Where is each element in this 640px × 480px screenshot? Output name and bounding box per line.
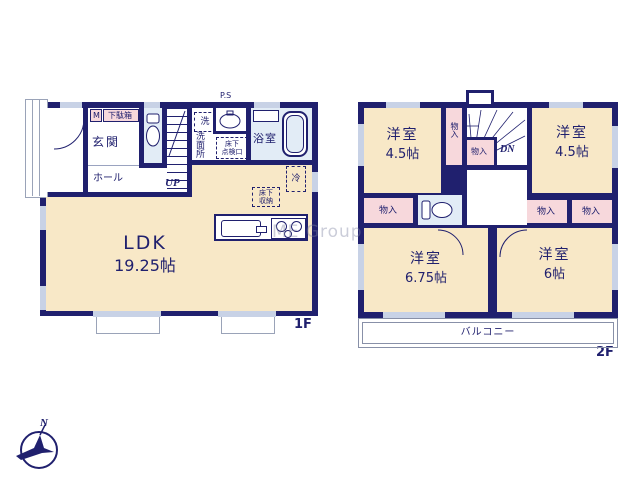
bedroom-ne-name: 洋室 [532, 126, 612, 140]
closet-se2-label: 物入 [582, 208, 600, 217]
window [386, 102, 420, 108]
underfloor-hatch: 床下 点検口 [216, 137, 248, 159]
pipe-space-label: P.S [220, 92, 231, 100]
window [549, 102, 583, 108]
hall-label: ホール [93, 174, 123, 184]
window [512, 312, 574, 318]
underfloor-storage-line1: 床下 [259, 189, 273, 197]
ldk-size-label: 19.25帖 [90, 258, 200, 274]
window [312, 172, 318, 192]
bathroom-label: 浴室 [253, 133, 277, 144]
watermark: ME Group [272, 224, 363, 241]
terrace [221, 317, 275, 334]
closet-tall-label: 物入 [450, 122, 458, 138]
kitchen-faucet-icon [256, 226, 267, 233]
window [40, 286, 46, 310]
washer-label: 洗 [200, 117, 209, 127]
window [254, 102, 280, 108]
ldk-name-label: LDK [90, 234, 200, 253]
closet-sw-label: 物入 [379, 207, 397, 216]
window [40, 206, 46, 230]
bedroom-ne-size: 4.5帖 [532, 146, 612, 159]
bedroom-se-size: 6帖 [497, 268, 612, 281]
toilet-icon-2f [420, 197, 460, 223]
underfloor-hatch-line2: 点検口 [222, 148, 243, 156]
terrace [96, 317, 160, 334]
stairs-up-label: UP [165, 178, 180, 189]
approach-steps [25, 99, 48, 198]
bedroom-nw-size: 4.5帖 [364, 148, 441, 161]
stairs-down-label: DN [500, 145, 514, 155]
bath-counter [253, 110, 279, 122]
washer-space: 洗 [194, 112, 216, 132]
meter-box-label: M [93, 112, 100, 120]
bedroom-nw-name: 洋室 [364, 128, 441, 142]
underfloor-storage: 床下 収納 [252, 187, 280, 207]
stair-window-bay [466, 90, 494, 104]
washbasin-icon [216, 110, 244, 130]
closet-se1-label: 物入 [537, 208, 555, 217]
toilet-icon-1f [144, 112, 162, 156]
floor1-label: 1F [294, 318, 312, 331]
kitchen-sink-icon [221, 220, 261, 237]
underfloor-hatch-line1: 床下 [225, 140, 239, 148]
window [358, 244, 364, 290]
door-arc-icon [441, 167, 468, 194]
bedroom-se-name: 洋室 [497, 248, 612, 262]
bedroom-sw [364, 228, 488, 312]
approach-step-line [39, 99, 40, 196]
bedroom-sw-name: 洋室 [364, 252, 488, 266]
compass-icon [14, 424, 64, 474]
fridge-space: 冷 [286, 166, 306, 192]
entrance-label: 玄関 [92, 136, 120, 148]
washroom-label: 洗面所 [194, 131, 203, 158]
bathtub-inner-line [286, 115, 304, 153]
window [358, 124, 364, 166]
window [383, 312, 445, 318]
compass-north-label: N [40, 418, 48, 429]
shoe-box-label: 下駄箱 [108, 112, 132, 120]
balcony-label: バルコニー [358, 328, 618, 338]
bedroom-sw-size: 6.75帖 [364, 272, 488, 285]
entrance-door-arc-icon [53, 118, 85, 150]
closet-under-stairs-label: 物入 [471, 148, 487, 156]
underfloor-storage-line2: 収納 [259, 197, 273, 205]
hall-2f [467, 170, 527, 225]
approach-step-line [32, 99, 33, 196]
window [612, 126, 618, 168]
window [60, 102, 82, 108]
window [612, 244, 618, 290]
floor-plan-canvas: 洗 床下 点検口 冷 床下 収納 M 下駄箱 玄関 ホール UP 洗面所 P.S… [0, 0, 640, 480]
fridge-label: 冷 [291, 174, 300, 184]
entrance-step-line [88, 165, 139, 166]
window [144, 102, 160, 108]
ldk-room-main [46, 197, 196, 311]
